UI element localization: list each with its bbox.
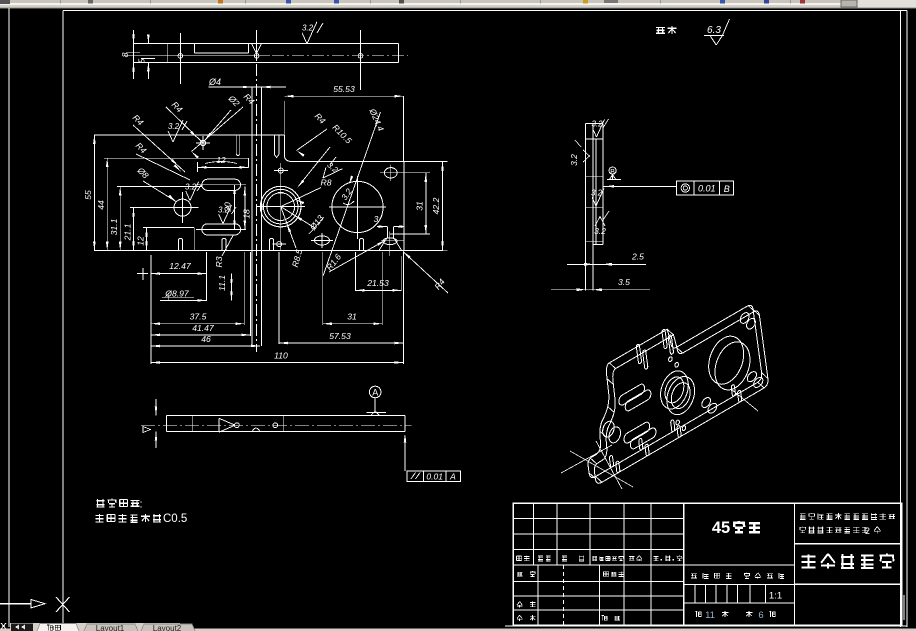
svg-text:3.2: 3.2 xyxy=(594,226,606,236)
svg-text:3.2: 3.2 xyxy=(168,122,180,131)
svg-text:31: 31 xyxy=(415,201,425,211)
svg-text:12: 12 xyxy=(136,236,146,246)
svg-text:Layout2: Layout2 xyxy=(153,624,182,631)
svg-text:3: 3 xyxy=(374,214,379,224)
svg-text:31.1: 31.1 xyxy=(109,218,119,235)
svg-text:12.47: 12.47 xyxy=(169,261,192,271)
svg-text:21.53: 21.53 xyxy=(366,278,389,288)
svg-text:6: 6 xyxy=(758,610,763,621)
svg-text:5: 5 xyxy=(138,58,147,63)
svg-text:57.53: 57.53 xyxy=(329,331,351,341)
svg-text:37.5: 37.5 xyxy=(190,312,207,322)
svg-text:44: 44 xyxy=(96,200,106,210)
svg-text:Ø8.97: Ø8.97 xyxy=(164,289,190,299)
svg-text:Ø4: Ø4 xyxy=(208,77,221,87)
svg-text:3.2: 3.2 xyxy=(591,189,603,198)
svg-text:41.47: 41.47 xyxy=(192,323,215,333)
svg-text:B: B xyxy=(724,184,730,194)
svg-text:A: A xyxy=(449,472,456,482)
svg-text:3.2: 3.2 xyxy=(218,206,230,215)
svg-text:55.53: 55.53 xyxy=(333,84,355,94)
svg-text:0.01: 0.01 xyxy=(426,471,443,481)
svg-text:Layout1: Layout1 xyxy=(96,624,125,631)
svg-text:2: 2 xyxy=(865,526,870,536)
svg-text:3.2: 3.2 xyxy=(591,120,603,129)
svg-text:46: 46 xyxy=(201,334,211,344)
svg-text:C0.5: C0.5 xyxy=(163,513,187,525)
svg-text:11.1: 11.1 xyxy=(217,275,227,291)
svg-text:3.5: 3.5 xyxy=(618,277,630,287)
svg-text::: : xyxy=(139,499,142,511)
svg-text:110: 110 xyxy=(274,351,288,361)
svg-text:8: 8 xyxy=(120,52,130,57)
svg-text:3.2: 3.2 xyxy=(185,182,197,191)
svg-text:0.01: 0.01 xyxy=(698,184,716,194)
svg-text:45: 45 xyxy=(712,519,730,537)
svg-text:2.5: 2.5 xyxy=(631,252,644,262)
svg-text:31: 31 xyxy=(347,312,357,322)
svg-text:11: 11 xyxy=(705,610,715,621)
svg-text:3.2: 3.2 xyxy=(302,24,314,33)
svg-text:55: 55 xyxy=(83,190,93,200)
svg-text:6.3: 6.3 xyxy=(707,25,721,36)
svg-text:R8: R8 xyxy=(321,178,332,188)
svg-text:A: A xyxy=(372,388,378,398)
svg-text:42.2: 42.2 xyxy=(431,197,441,214)
svg-text:1:1: 1:1 xyxy=(769,591,782,602)
svg-text:3.2: 3.2 xyxy=(569,154,579,166)
svg-text:R3: R3 xyxy=(214,256,224,267)
svg-text:12: 12 xyxy=(216,155,226,165)
svg-text:18: 18 xyxy=(242,209,252,219)
svg-text:21.1: 21.1 xyxy=(123,223,133,241)
